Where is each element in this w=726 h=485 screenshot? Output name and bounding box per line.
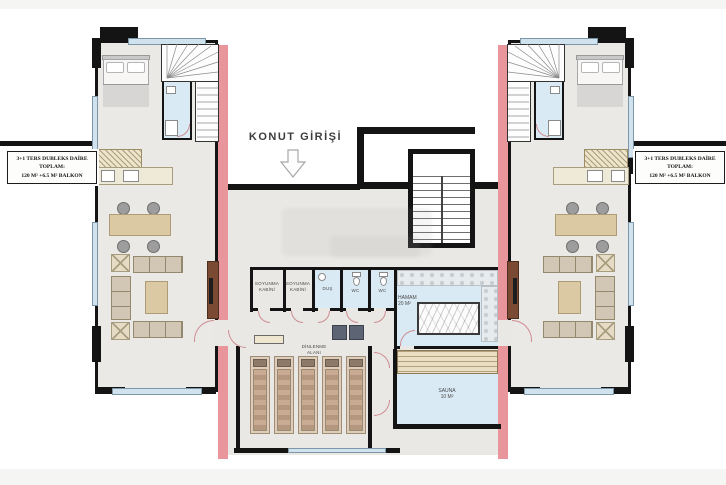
hamam-door-gap <box>400 346 414 349</box>
lounger-pillow <box>277 359 291 367</box>
mat-1 <box>332 325 347 340</box>
sofa-top-left-unit <box>133 256 183 273</box>
lounger-cushion <box>253 369 267 431</box>
mat-2 <box>349 325 364 340</box>
hamam-mosaic-top <box>397 270 498 286</box>
sofa-side-right-unit <box>595 276 615 320</box>
stove-icon <box>587 170 603 182</box>
hamam-label: HAMAM20 M² <box>398 295 432 308</box>
shower-icon <box>318 273 326 281</box>
side-table <box>111 322 130 340</box>
wardrobe-right <box>584 149 628 168</box>
entrance-wall-left <box>357 127 364 189</box>
lounger-pillow <box>325 359 339 367</box>
rest-wall-right <box>368 346 372 450</box>
unit-right-window-2 <box>628 222 634 306</box>
bed-pillow <box>602 62 620 73</box>
dus-label: DUŞ <box>315 286 340 292</box>
unit-right-chunk-1 <box>625 38 634 68</box>
pink-wall-left <box>218 45 228 459</box>
unit-right-label: 3+1 TERS DUBLEKS DAİRE TOPLAM: 120 M² +6… <box>635 151 725 184</box>
wc1-label: WC <box>343 288 368 294</box>
unit-left-window-2 <box>92 222 98 306</box>
hamam-mosaic-right <box>481 286 498 342</box>
unit-right-window-1 <box>628 96 634 158</box>
unit-left-label: 3+1 TERS DUBLEKS DAİRE TOPLAM: 120 M² +6… <box>7 151 97 184</box>
lounger-5 <box>346 356 366 434</box>
bed-blanket <box>103 84 149 107</box>
side-table <box>111 254 130 272</box>
lounger-1 <box>250 356 270 434</box>
coffee-table-left <box>145 281 168 314</box>
dining-table-right <box>555 214 617 236</box>
lounger-cushion <box>301 369 315 431</box>
unit-right-chunk-3 <box>625 326 634 362</box>
dinlenme-label: DİNLENMEALANI <box>294 344 334 355</box>
lounger-cushion <box>277 369 291 431</box>
soyunma2-label: SOYUNMAKABİNİ <box>284 281 312 292</box>
sofa-top-right-unit <box>543 256 593 273</box>
lounger-3 <box>298 356 318 434</box>
unit-right-entry-gap <box>498 320 513 346</box>
entrance-arrow-icon <box>281 150 305 178</box>
bed-pillow <box>127 62 145 73</box>
rest-wall-left <box>236 346 240 450</box>
entrance-wall-top <box>357 127 475 134</box>
bed-pillow <box>581 62 599 73</box>
section-line-left <box>0 141 95 146</box>
lounger-pillow <box>253 359 267 367</box>
floor-plan: KONUT GİRİŞİ SOYUNMAKABİNİ SOYUNMAKABİNİ… <box>0 0 726 485</box>
section-line-right <box>631 141 726 146</box>
lounger-cushion <box>349 369 363 431</box>
dining-table-left <box>109 214 171 236</box>
dining-chair <box>596 240 609 253</box>
lounger-cushion <box>325 369 339 431</box>
sofa-side-left-unit <box>111 276 131 320</box>
sofa-bottom-right-unit <box>543 321 593 338</box>
unit-left-window-bottom <box>112 388 202 395</box>
tv-icon <box>513 278 517 304</box>
sofa-bottom-left-unit <box>133 321 183 338</box>
kitchen-sink-icon <box>101 170 115 182</box>
unit-right-window-bottom <box>524 388 614 395</box>
dining-chair <box>117 240 130 253</box>
side-table <box>596 322 615 340</box>
kitchen-sink-icon <box>611 170 625 182</box>
entrance-wall-connector <box>357 182 412 189</box>
wardrobe-left <box>98 149 142 168</box>
stove-icon <box>123 170 139 182</box>
equipment-tag <box>254 335 284 344</box>
lounger-pillow <box>301 359 315 367</box>
rest-window-bottom <box>288 448 386 453</box>
bed-blanket <box>577 84 623 107</box>
unit-left-chunk-1 <box>92 38 101 68</box>
coffee-table-right <box>558 281 581 314</box>
lounger-pillow <box>349 359 363 367</box>
unit-left-entry-gap <box>213 320 228 346</box>
dining-chair <box>566 240 579 253</box>
wc2-label: WC <box>371 288 394 294</box>
unit-left-staircase <box>161 44 219 142</box>
sauna-wall-bottom <box>393 424 501 429</box>
lounger-2 <box>274 356 294 434</box>
watermark-2 <box>330 236 420 258</box>
tv-icon <box>209 278 213 304</box>
side-table <box>596 254 615 272</box>
unit-left-chunk-3 <box>92 326 101 362</box>
bottom-margin-band <box>0 469 726 485</box>
sauna-benches <box>397 350 498 374</box>
lounger-4 <box>322 356 342 434</box>
entrance-label: KONUT GİRİŞİ <box>233 131 358 143</box>
unit-right-staircase <box>507 44 565 142</box>
stair-divider <box>441 176 443 243</box>
entrance-wall-right-connector <box>473 182 498 189</box>
top-margin-band <box>0 0 726 9</box>
dining-chair <box>147 240 160 253</box>
soyunma1-label: SOYUNMAKABİNİ <box>252 281 282 292</box>
bed-pillow <box>106 62 124 73</box>
sauna-label: SAUNA10 M² <box>425 388 469 401</box>
corridor-wall-top <box>228 184 360 190</box>
